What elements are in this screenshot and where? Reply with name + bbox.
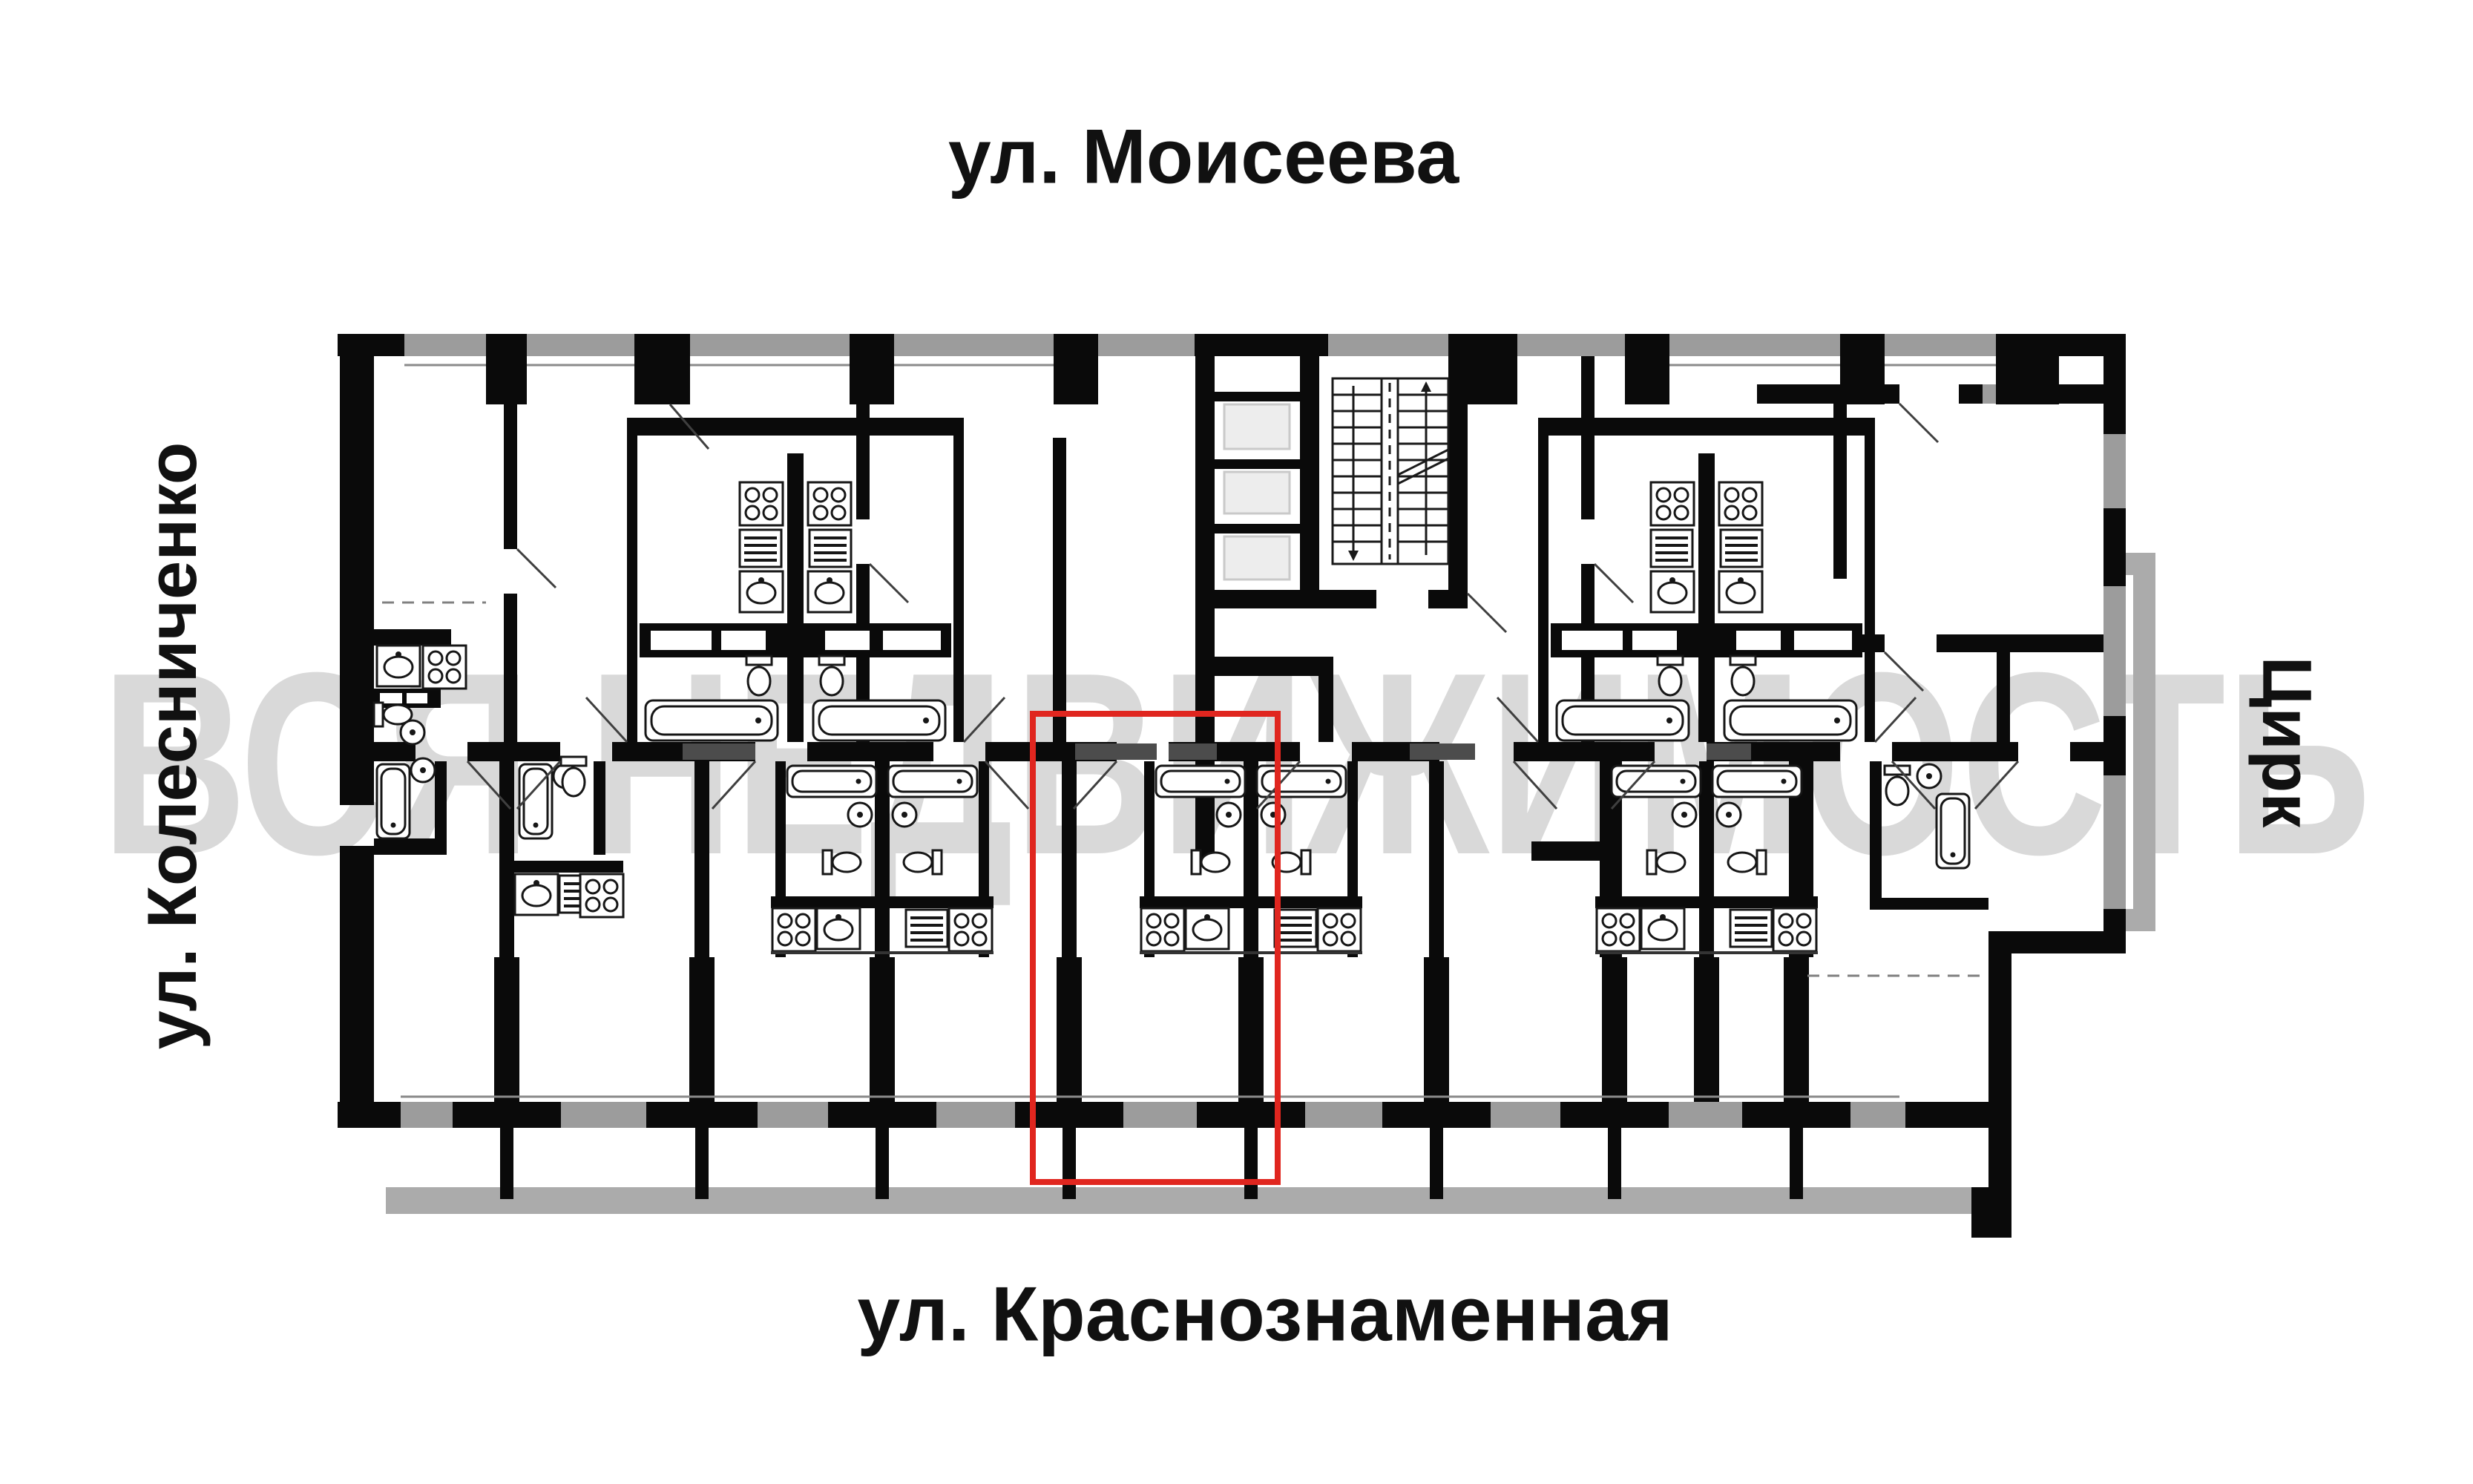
street-label-top: ул. Моисеева bbox=[948, 114, 1459, 202]
basin-icon bbox=[1917, 764, 1941, 788]
toilet-icon bbox=[561, 757, 586, 796]
bathtub-icon bbox=[377, 764, 410, 838]
street-label-left: ул. Колесниченко bbox=[132, 442, 212, 1050]
floor-plan-page: ВСЯ НЕДВИЖИМОСТЬ bbox=[0, 0, 2473, 1484]
stove-icon bbox=[580, 874, 623, 917]
bathtub-icon bbox=[1937, 794, 1969, 868]
stairs-icon bbox=[1333, 378, 1448, 564]
basin-icon bbox=[401, 720, 424, 744]
street-label-right: Цирк bbox=[2247, 657, 2327, 828]
elevator-icon bbox=[1224, 404, 1290, 580]
stove-icon bbox=[423, 646, 466, 689]
lower-unit-cluster bbox=[771, 761, 1818, 957]
kitchen-sink-icon bbox=[377, 646, 420, 686]
kitchen-sink-icon bbox=[515, 874, 558, 915]
toilet-icon bbox=[1885, 766, 1910, 805]
street-label-bottom: ул. Краснознаменная bbox=[857, 1271, 1672, 1359]
basin-icon bbox=[411, 758, 435, 782]
floor-plan-svg: ВСЯ НЕДВИЖИМОСТЬ bbox=[0, 0, 2473, 1484]
